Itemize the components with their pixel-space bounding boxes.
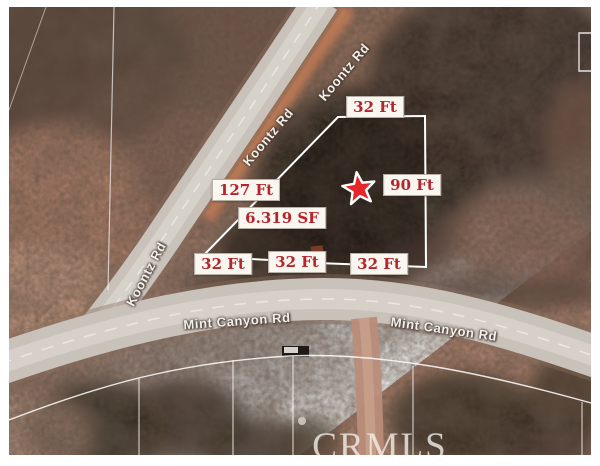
aerial-photo: CRMLS	[0, 0, 600, 466]
measurement-left-side: 127 Ft	[212, 179, 280, 201]
measurement-lot-area: 6.319 SF	[238, 207, 326, 229]
measurement-bottom-middle: 32 Ft	[268, 251, 326, 273]
measurement-bottom-right: 32 Ft	[350, 253, 408, 275]
measurement-top-width: 32 Ft	[346, 96, 404, 118]
measurement-bottom-left: 32 Ft	[194, 253, 252, 275]
aerial-photo-content: CRMLS	[0, 0, 600, 466]
listing-photo-page: CRMLS Koontz Rd Koontz Rd Koontz Rd Mint…	[0, 0, 600, 466]
crmls-watermark: CRMLS	[312, 426, 447, 466]
measurement-right-side: 90 Ft	[383, 174, 441, 196]
